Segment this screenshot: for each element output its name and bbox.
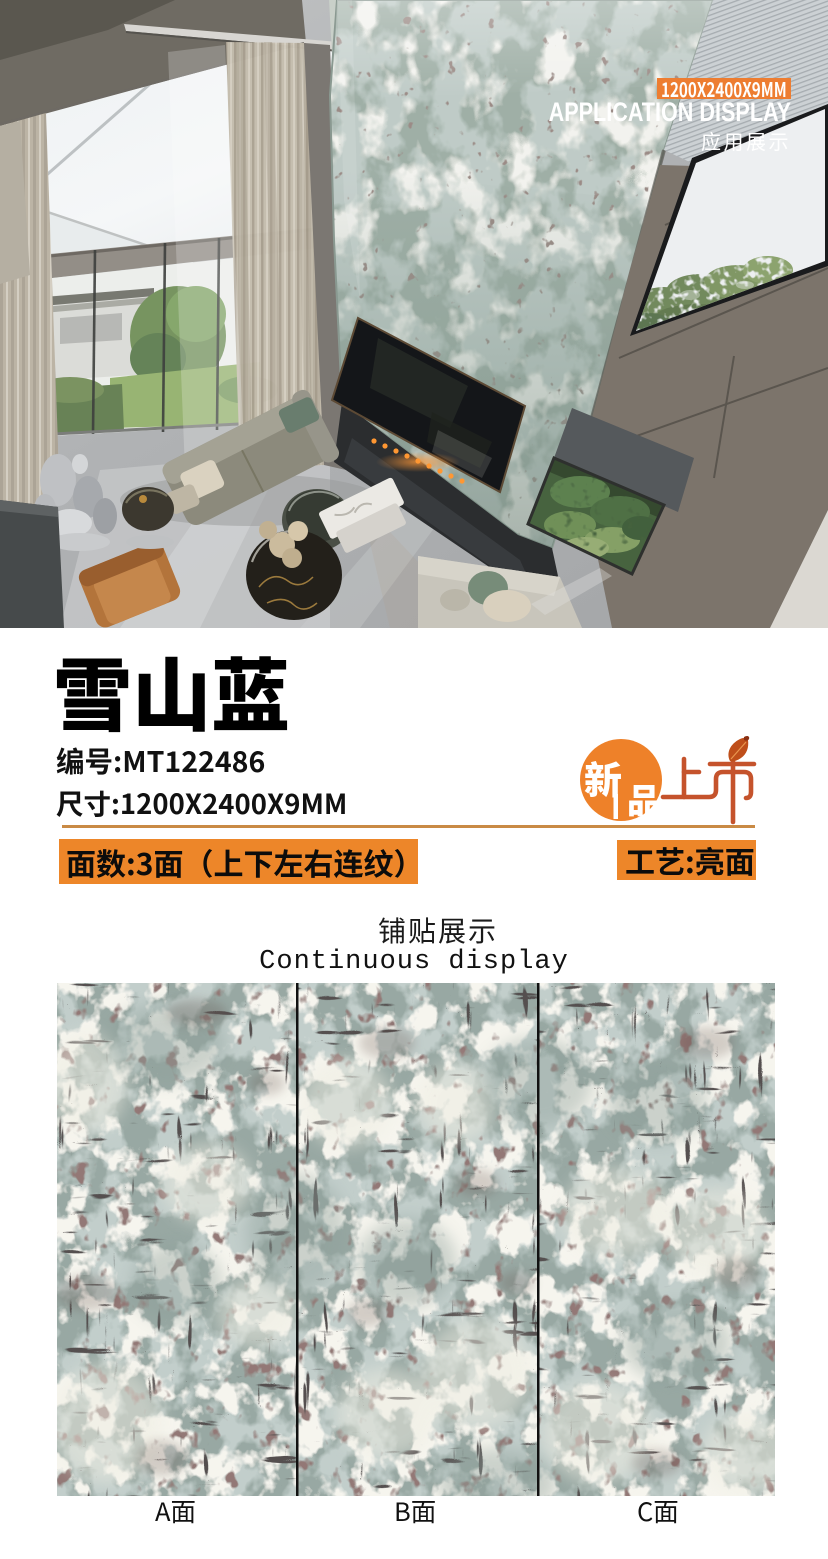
svg-text:品: 品: [627, 774, 661, 823]
